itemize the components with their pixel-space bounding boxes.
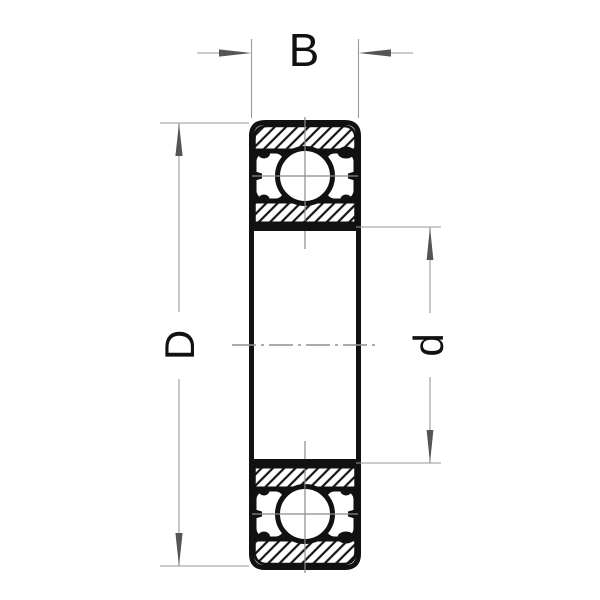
bearing-diagram: B D d [0, 0, 600, 600]
arrowhead-up-icon [175, 123, 182, 156]
bearing-bottom-section [249, 441, 361, 573]
bottom-seal-anchor-right-inner [341, 487, 352, 496]
top-seal-anchor-left-inner [259, 195, 270, 204]
top-seal-anchor-left-outer [258, 149, 270, 159]
arrowhead-down-icon [175, 533, 182, 566]
arrowhead-down-icon [427, 430, 434, 463]
dimension-bore-diameter-d: d [356, 227, 452, 463]
width-label: B [289, 24, 320, 76]
dimension-width-B: B [197, 24, 413, 118]
bearing-drawing-canvas: B D d [0, 0, 600, 600]
top-seal-anchor-right-outer [338, 147, 355, 159]
bottom-seal-anchor-left-inner [259, 487, 270, 496]
bearing-top-section [249, 117, 361, 249]
top-bore-surface-bar [249, 222, 361, 232]
bottom-bore-surface-bar [249, 459, 361, 469]
bore-edge-lines [252, 226, 359, 464]
top-seal-anchor-right-inner [341, 195, 352, 204]
arrowhead-right-icon [219, 49, 252, 56]
outer-diameter-label: D [156, 330, 203, 360]
bottom-seal-anchor-right-outer [338, 532, 355, 544]
arrowhead-up-icon [427, 227, 434, 260]
arrowhead-left-icon [359, 49, 392, 56]
bottom-seal-anchor-left-outer [258, 532, 270, 542]
bore-diameter-label: d [405, 333, 452, 356]
